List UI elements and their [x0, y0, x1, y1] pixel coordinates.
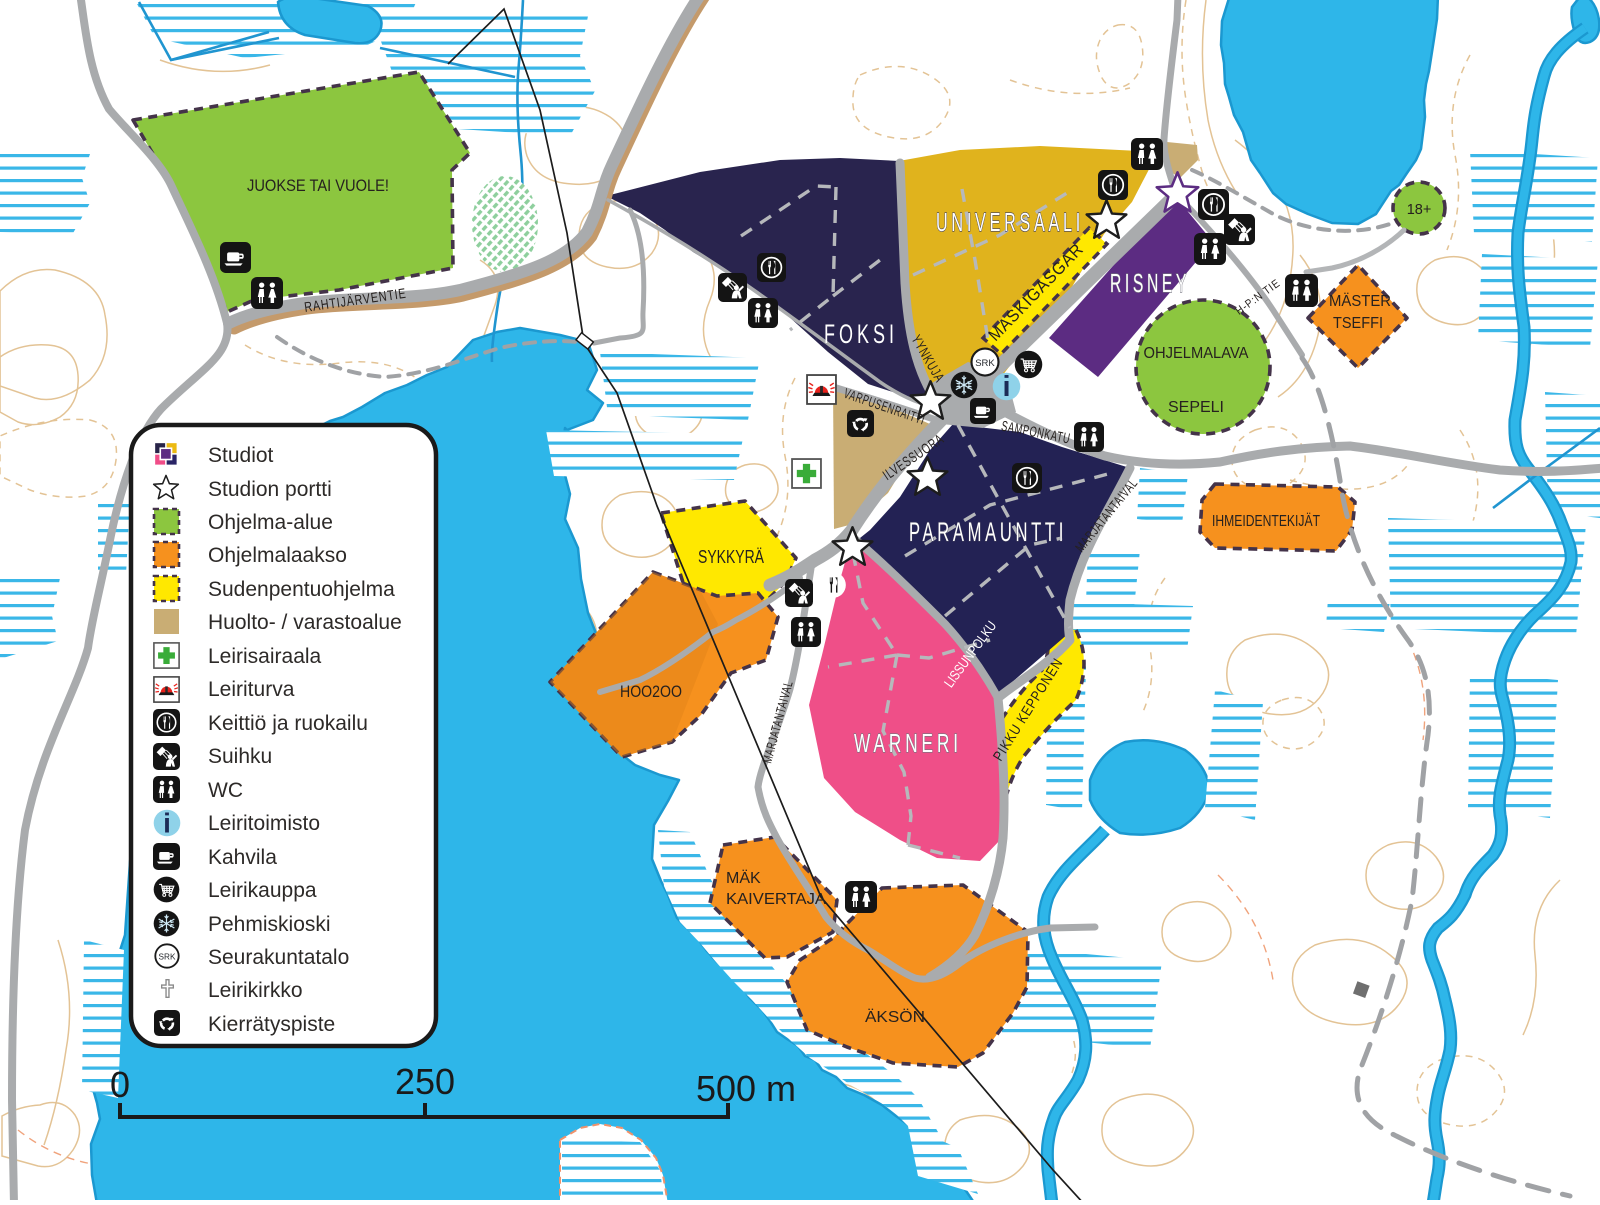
svg-text:OHJELMALAVA: OHJELMALAVA — [1144, 345, 1249, 362]
svg-text:Pehmiskioski: Pehmiskioski — [208, 913, 331, 936]
svg-text:TSEFFI: TSEFFI — [1333, 315, 1383, 332]
svg-text:Studion portti: Studion portti — [208, 478, 332, 501]
svg-text:Studiot: Studiot — [208, 444, 274, 467]
svg-text:ÄKSÖN: ÄKSÖN — [865, 1008, 925, 1026]
svg-text:Huolto- / varastoalue: Huolto- / varastoalue — [208, 611, 402, 634]
svg-text:Ohjelmalaakso: Ohjelmalaakso — [208, 544, 347, 567]
svg-text:Leirikirkko: Leirikirkko — [208, 979, 303, 1002]
svg-text:Leirikauppa: Leirikauppa — [208, 879, 317, 902]
svg-text:JUOKSE TAI VUOLE!: JUOKSE TAI VUOLE! — [247, 176, 389, 195]
svg-text:SEPELI: SEPELI — [1168, 399, 1224, 416]
svg-text:FOKSI: FOKSI — [824, 319, 898, 349]
svg-text:0: 0 — [110, 1064, 130, 1105]
svg-text:MÄK: MÄK — [726, 869, 761, 887]
svg-text:Leirisairaala: Leirisairaala — [208, 645, 322, 668]
svg-text:Seurakuntatalo: Seurakuntatalo — [208, 946, 349, 969]
svg-text:Leiriturva: Leiriturva — [208, 678, 295, 701]
svg-text:WARNERI: WARNERI — [854, 728, 962, 758]
svg-text:250: 250 — [395, 1061, 455, 1102]
svg-text:Ohjelma-alue: Ohjelma-alue — [208, 511, 333, 534]
svg-text:Keittiö ja ruokailu: Keittiö ja ruokailu — [208, 712, 368, 735]
svg-text:Suihku: Suihku — [208, 745, 272, 768]
svg-text:RISNEY: RISNEY — [1110, 268, 1190, 298]
svg-text:Kierrätyspiste: Kierrätyspiste — [208, 1013, 335, 1036]
svg-text:KAIVERTAJA: KAIVERTAJA — [726, 891, 826, 908]
svg-text:18+: 18+ — [1407, 202, 1432, 218]
svg-text:MÄSTER: MÄSTER — [1329, 292, 1391, 310]
svg-text:Kahvila: Kahvila — [208, 846, 277, 869]
svg-text:Sudenpentuohjelma: Sudenpentuohjelma — [208, 578, 395, 601]
svg-text:UNIVERSAALI: UNIVERSAALI — [936, 207, 1084, 237]
svg-text:SYKKYRÄ: SYKKYRÄ — [698, 547, 764, 567]
svg-text:IHMEIDENTEKIJÄT: IHMEIDENTEKIJÄT — [1212, 512, 1320, 530]
svg-text:Leiritoimisto: Leiritoimisto — [208, 812, 320, 835]
svg-text:HOO2OO: HOO2OO — [620, 682, 682, 701]
svg-text:PARAMAUNTTI: PARAMAUNTTI — [909, 517, 1067, 547]
svg-text:WC: WC — [208, 779, 243, 802]
svg-text:500 m: 500 m — [696, 1068, 796, 1109]
